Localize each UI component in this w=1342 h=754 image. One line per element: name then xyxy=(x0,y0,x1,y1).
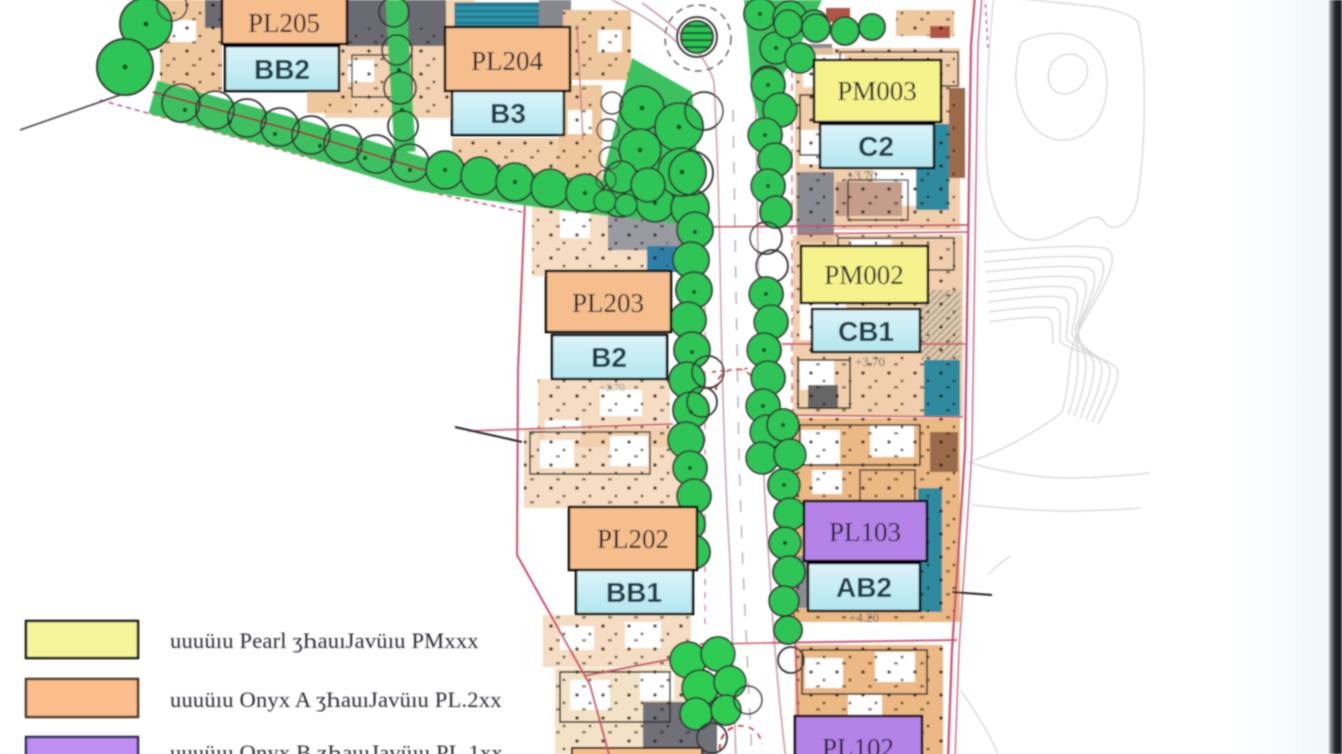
svg-text:+3.70: +3.70 xyxy=(847,168,877,183)
svg-text:uuuüıu Onyx B ʒҺauıJavüıu PL.1: uuuüıu Onyx B ʒҺauıJavüıu PL.1xx xyxy=(170,740,503,754)
svg-text:uuuüıu Pearl ʒҺauıJavüıu PMxxx: uuuüıu Pearl ʒҺauıJavüıu PMxxx xyxy=(170,628,479,653)
svg-text:+3.70: +3.70 xyxy=(599,382,625,394)
svg-text:AB2: AB2 xyxy=(836,572,892,603)
svg-text:PL103: PL103 xyxy=(829,517,901,547)
svg-text:PL102: PL102 xyxy=(822,733,894,754)
svg-text:PM002: PM002 xyxy=(824,260,904,290)
svg-text:PL204: PL204 xyxy=(471,46,544,76)
svg-text:BB2: BB2 xyxy=(254,54,310,85)
svg-text:uuuüıu Onyx A ʒҺauıJavüıu PL.2: uuuüıu Onyx A ʒҺauıJavüıu PL.2xx xyxy=(170,687,502,712)
svg-text:PM003: PM003 xyxy=(837,76,917,106)
svg-text:B3: B3 xyxy=(490,98,526,129)
svg-text:PL205: PL205 xyxy=(248,8,320,38)
svg-text:PL203: PL203 xyxy=(572,288,644,318)
svg-text:+3.70: +3.70 xyxy=(855,354,885,369)
svg-text:PL202: PL202 xyxy=(597,524,669,554)
svg-text:CB1: CB1 xyxy=(838,316,894,347)
svg-text:B2: B2 xyxy=(591,342,627,373)
svg-text:C2: C2 xyxy=(858,131,894,162)
svg-text:BB1: BB1 xyxy=(606,577,662,608)
